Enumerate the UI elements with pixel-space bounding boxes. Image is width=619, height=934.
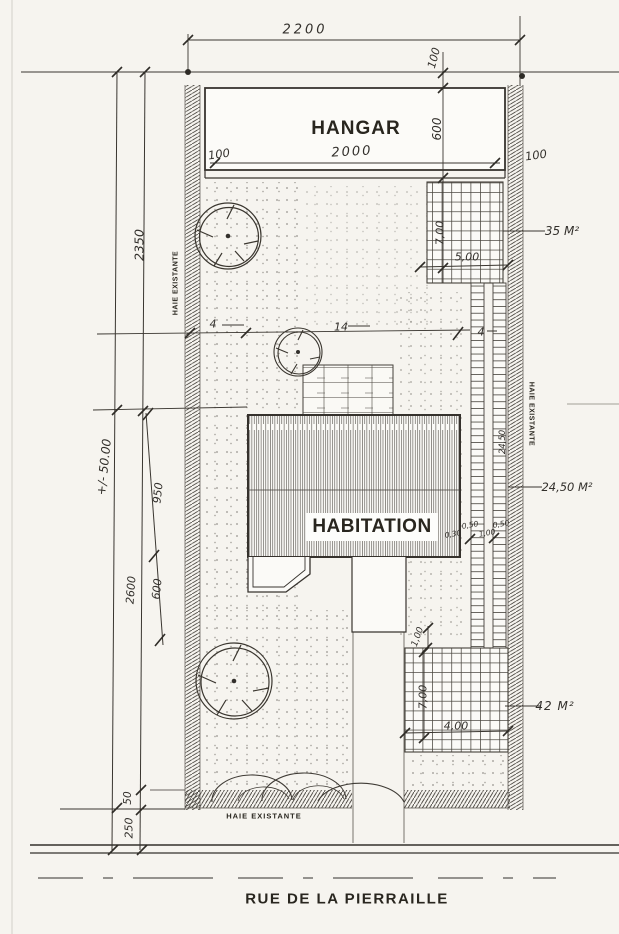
tree-2 bbox=[274, 328, 322, 376]
driveway bbox=[353, 632, 404, 843]
site-plan: 2200 100 HANGAR 600 2000 100 100 7,00 5,… bbox=[0, 0, 619, 934]
hedge-bottom bbox=[185, 790, 510, 808]
dim-terrace-up-h: 7,00 bbox=[434, 221, 447, 246]
dim-terrace-low-w: 4,00 bbox=[444, 720, 469, 733]
dim-terrace-low-h: 7,00 bbox=[417, 685, 430, 710]
rear-step bbox=[352, 557, 406, 632]
dim-house-to-terrace: 600 bbox=[149, 578, 164, 600]
dim-hedge-depth: 50 bbox=[122, 791, 134, 804]
dim-front-setback: 250 bbox=[123, 818, 136, 839]
dim-path-length: 24,50 bbox=[498, 430, 508, 454]
dim-cross-right: 4 bbox=[478, 326, 485, 339]
hedge-right-label: HAIE EXISTANTE bbox=[528, 382, 535, 446]
hedge-bottom-label: HAIE EXISTANTE bbox=[226, 812, 302, 821]
dim-rear-depth: 2600 bbox=[124, 576, 139, 605]
tree-1 bbox=[195, 203, 261, 269]
dim-house-depth: 950 bbox=[150, 482, 165, 504]
area-lower-terrace: 42 M² bbox=[535, 699, 574, 713]
hedge-left bbox=[185, 85, 200, 810]
dim-hangar-width: 2000 bbox=[331, 143, 373, 160]
hangar-label: HANGAR bbox=[311, 118, 400, 140]
street-name: RUE DE LA PIERRAILLE bbox=[245, 891, 449, 908]
dim-cross-left: 4 bbox=[210, 318, 217, 331]
dim-terrace-up-w: 5,00 bbox=[455, 251, 480, 264]
habitation-label: HABITATION bbox=[312, 516, 431, 538]
dim-hangar-depth: 600 bbox=[430, 118, 444, 141]
dim-lot-width: 2200 bbox=[282, 23, 327, 38]
dim-cross-center: 14 bbox=[334, 321, 348, 334]
area-upper-terrace: 35 M² bbox=[545, 224, 579, 238]
hedge-left-label: HAIE EXISTANTE bbox=[173, 251, 180, 315]
garden-paths bbox=[471, 283, 506, 648]
street bbox=[30, 845, 619, 878]
patio-north bbox=[303, 365, 393, 415]
boundary-corner-dots bbox=[185, 69, 525, 79]
bay-window bbox=[248, 557, 310, 592]
area-paths: 24,50 M² bbox=[541, 480, 592, 494]
hedge-right bbox=[508, 85, 523, 810]
dim-left-upper: 2350 bbox=[132, 229, 147, 261]
plan-linework bbox=[0, 0, 619, 934]
tree-3 bbox=[196, 643, 272, 719]
